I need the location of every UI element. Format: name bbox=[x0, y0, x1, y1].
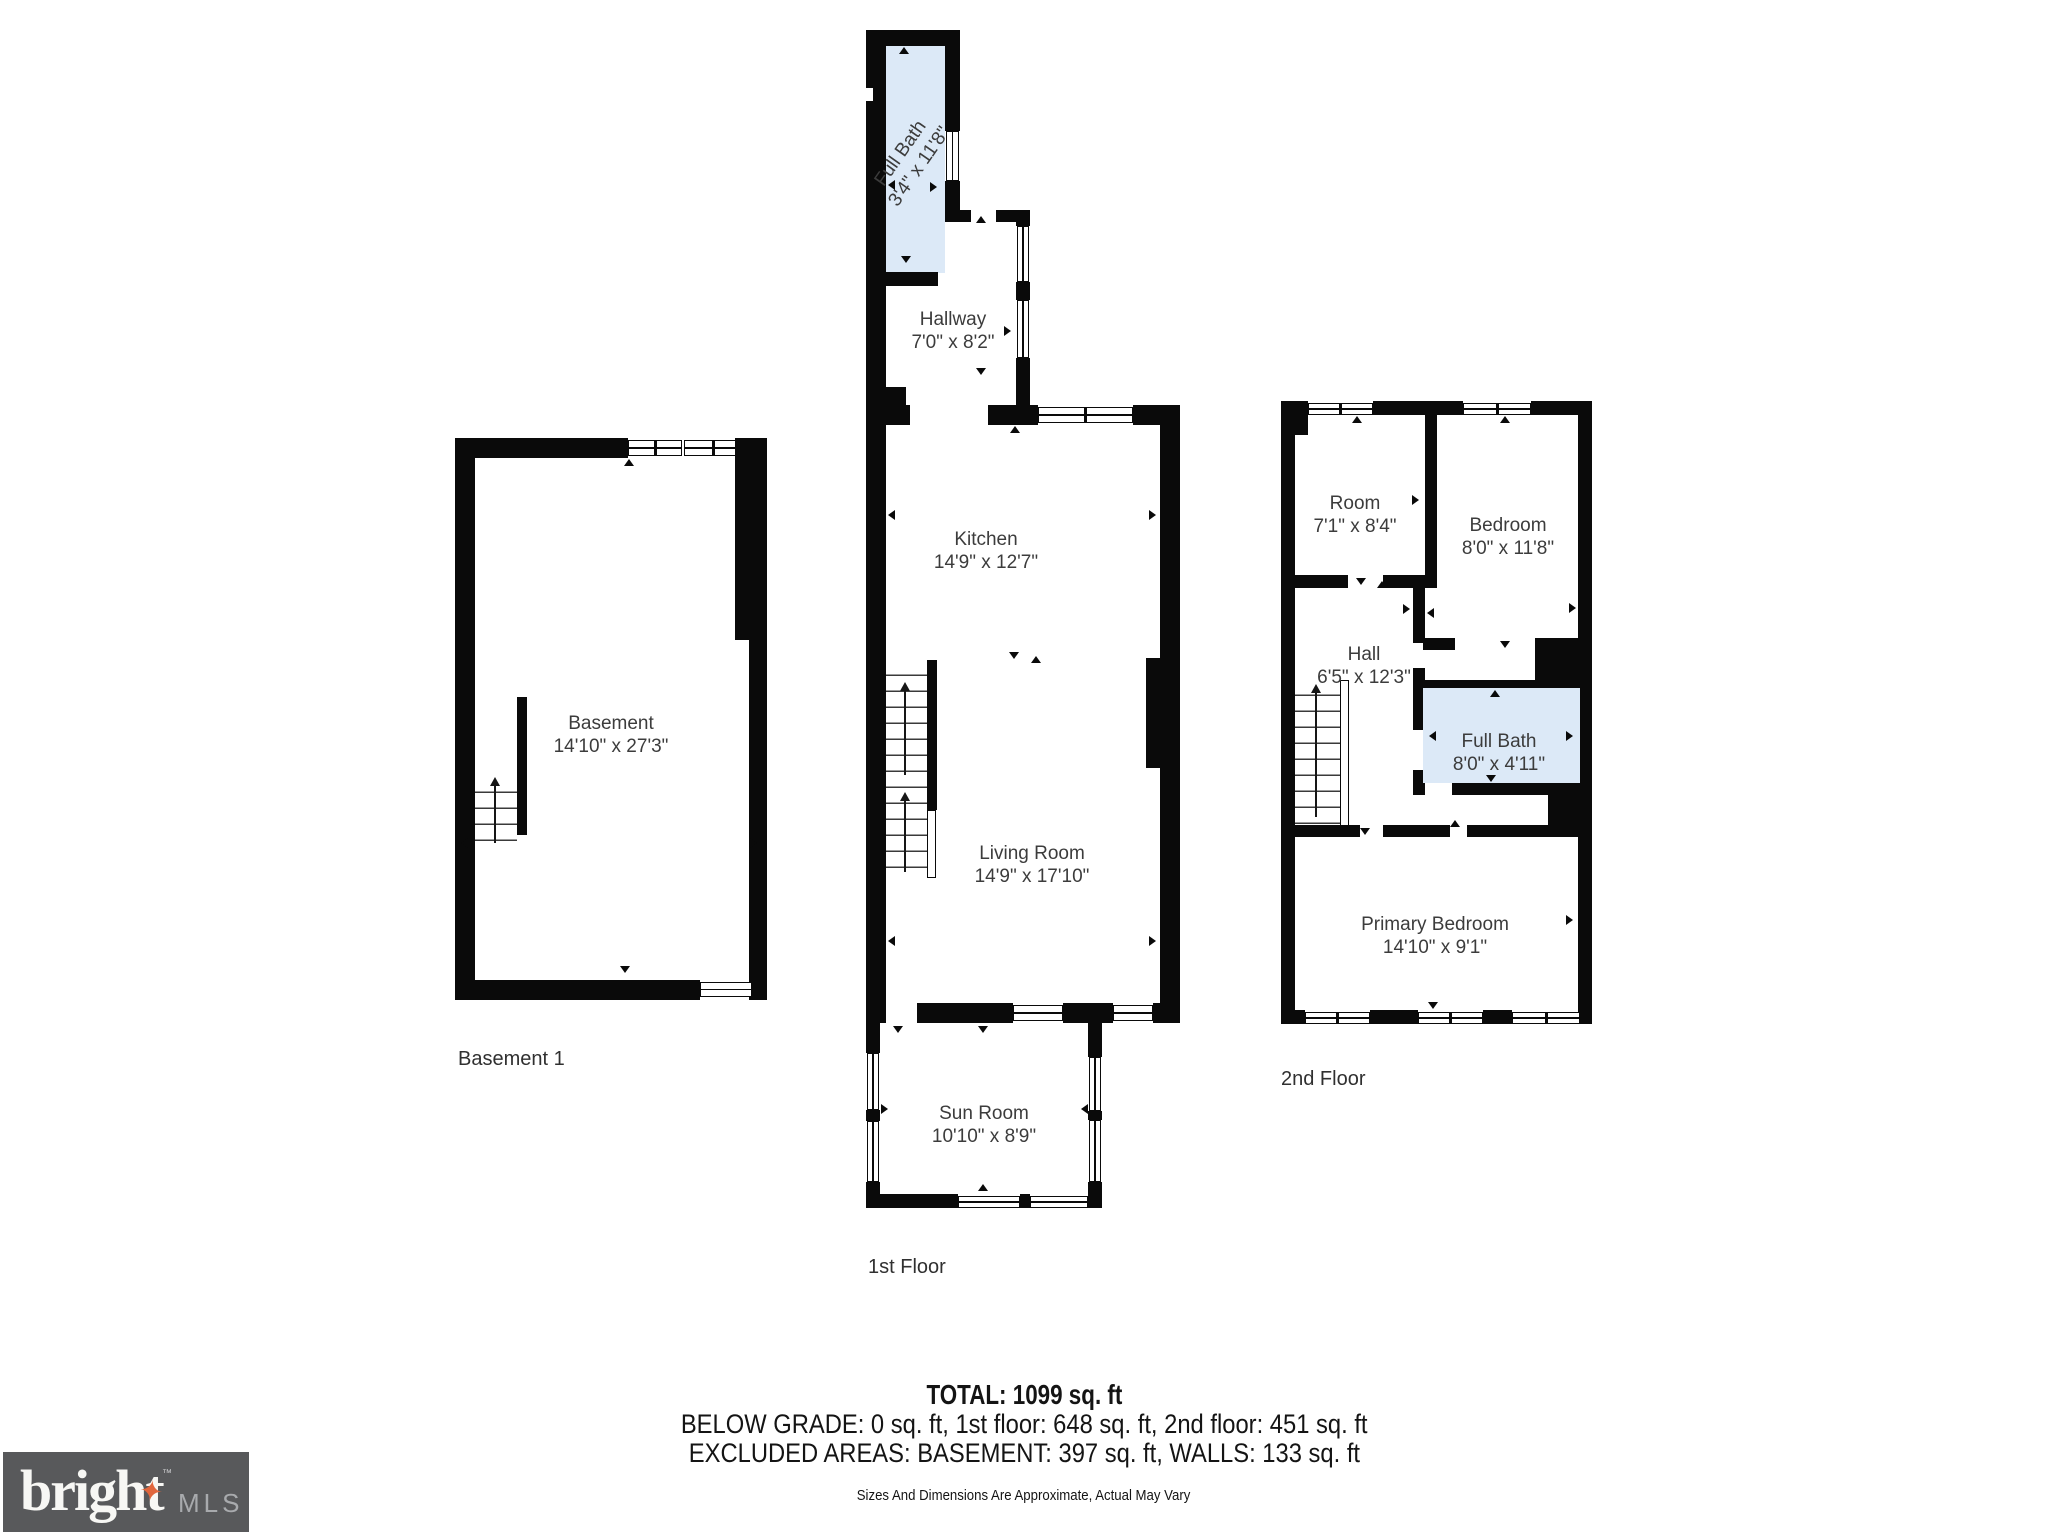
room-name: Primary Bedroom bbox=[1335, 913, 1535, 936]
room-label-kitchen: Kitchen 14'9" x 12'7" bbox=[886, 528, 1086, 574]
wall-segment bbox=[1548, 795, 1592, 825]
window bbox=[1089, 1120, 1101, 1182]
wall-segment bbox=[1295, 575, 1348, 588]
wall-segment bbox=[1088, 1023, 1102, 1057]
window bbox=[867, 1121, 879, 1182]
wall-segment bbox=[1063, 1003, 1113, 1023]
wall-segment bbox=[455, 438, 475, 1000]
wall-segment bbox=[1370, 1010, 1418, 1024]
room-label-bedroom: Bedroom 8'0" x 11'8" bbox=[1408, 514, 1608, 560]
wall-segment bbox=[1578, 401, 1592, 1024]
window bbox=[1089, 1057, 1101, 1111]
room-label-sun-room: Sun Room 10'10" x 8'9" bbox=[884, 1102, 1084, 1148]
dimension-tick bbox=[1377, 581, 1387, 588]
trademark-symbol: ™ bbox=[162, 1468, 172, 1479]
first-floor-stairs bbox=[886, 660, 927, 878]
wall-segment bbox=[1281, 1010, 1305, 1024]
dimension-tick bbox=[930, 182, 937, 192]
room-dims: 14'9" x 12'7" bbox=[886, 551, 1086, 574]
summary-line2-text: BELOW GRADE: 0 sq. ft, 1st floor: 648 sq… bbox=[681, 1409, 1368, 1440]
room-label-living-room: Living Room 14'9" x 17'10" bbox=[932, 842, 1132, 888]
dimension-tick bbox=[1500, 641, 1510, 648]
basement-stairs bbox=[475, 777, 517, 845]
wall-segment bbox=[988, 405, 1038, 425]
dimension-tick bbox=[1429, 731, 1436, 741]
dimension-tick bbox=[1566, 915, 1573, 925]
dimension-tick bbox=[899, 47, 909, 54]
room-dims: 8'0" x 4'11" bbox=[1399, 753, 1599, 776]
wall-segment bbox=[1413, 588, 1425, 643]
floor-label-second: 2nd Floor bbox=[1281, 1068, 1366, 1091]
dimension-tick bbox=[978, 1026, 988, 1033]
dimension-tick bbox=[1500, 416, 1510, 423]
wall-notch bbox=[866, 88, 873, 101]
dimension-tick bbox=[1360, 828, 1370, 835]
room-label-basement: Basement 14'10" x 27'3" bbox=[511, 712, 711, 758]
room-name: Kitchen bbox=[886, 528, 1086, 551]
dimension-tick bbox=[1412, 495, 1419, 505]
floor-label-first: 1st Floor bbox=[868, 1256, 946, 1279]
room-dims: 10'10" x 8'9" bbox=[884, 1125, 1084, 1148]
bright-mls-logo: bright ✦ ™ MLS bbox=[3, 1452, 249, 1532]
stairs-direction-arrow bbox=[904, 800, 906, 872]
window bbox=[684, 440, 742, 456]
room-dims: 14'9" x 17'10" bbox=[932, 865, 1132, 888]
wall-segment bbox=[866, 387, 906, 413]
room-name: Basement bbox=[511, 712, 711, 735]
wall-segment bbox=[1281, 825, 1360, 837]
summary-disclaimer: Sizes And Dimensions Are Approximate, Ac… bbox=[0, 1487, 2048, 1504]
window bbox=[1418, 1012, 1483, 1024]
room-name: Sun Room bbox=[884, 1102, 1084, 1125]
wall-segment bbox=[1281, 401, 1308, 415]
stairs-direction-arrow bbox=[1315, 692, 1317, 817]
wall-segment bbox=[1373, 401, 1463, 415]
dimension-tick bbox=[1428, 1002, 1438, 1009]
logo-mls-text: MLS bbox=[178, 1488, 243, 1519]
stair-rail bbox=[1340, 680, 1349, 827]
room-dims: 14'10" x 27'3" bbox=[511, 735, 711, 758]
summary-line-excluded: EXCLUDED AREAS: BASEMENT: 397 sq. ft, WA… bbox=[0, 1438, 2048, 1469]
wall-segment bbox=[1535, 638, 1583, 680]
window bbox=[700, 982, 752, 997]
wall-segment bbox=[917, 1003, 1013, 1023]
dimension-tick bbox=[1284, 915, 1291, 925]
room-name: Living Room bbox=[932, 842, 1132, 865]
second-floor-stairs bbox=[1295, 680, 1340, 827]
dimension-tick bbox=[1427, 608, 1434, 618]
floorplan-canvas: Basement 14'10" x 27'3" Basement 1 Full … bbox=[0, 0, 2048, 1536]
window bbox=[1305, 1012, 1370, 1024]
window bbox=[1463, 403, 1531, 415]
window bbox=[628, 440, 682, 456]
wall-segment bbox=[1383, 575, 1437, 588]
window bbox=[1030, 1196, 1088, 1208]
floor-label-basement: Basement 1 bbox=[458, 1048, 565, 1071]
summary-total: TOTAL: 1099 sq. ft bbox=[0, 1379, 2048, 1411]
window bbox=[1038, 407, 1133, 423]
window bbox=[867, 1053, 879, 1110]
wall-segment bbox=[455, 438, 628, 458]
dimension-tick bbox=[1569, 603, 1576, 613]
dimension-tick bbox=[1149, 936, 1156, 946]
wall-segment bbox=[1580, 1010, 1592, 1024]
wall-segment bbox=[1483, 1010, 1512, 1024]
dimension-tick bbox=[1450, 820, 1460, 827]
window bbox=[958, 1196, 1020, 1208]
chimney bbox=[1146, 658, 1180, 768]
dimension-tick bbox=[1081, 1104, 1088, 1114]
dimension-tick bbox=[1284, 495, 1291, 505]
wall-segment bbox=[1088, 1111, 1102, 1120]
window bbox=[1013, 1005, 1063, 1021]
summary-line3-text: EXCLUDED AREAS: BASEMENT: 397 sq. ft, WA… bbox=[688, 1438, 1359, 1469]
wall-segment bbox=[1383, 825, 1450, 837]
wall-segment bbox=[1413, 783, 1423, 795]
wall-segment bbox=[945, 210, 971, 222]
dimension-tick bbox=[1403, 604, 1410, 614]
stairs-direction-arrow bbox=[904, 690, 906, 775]
dimension-tick bbox=[461, 838, 468, 848]
stairs-direction-arrow bbox=[494, 785, 496, 843]
wall-segment bbox=[1088, 1194, 1102, 1208]
wall-segment bbox=[752, 980, 767, 1000]
wall-segment bbox=[1413, 680, 1580, 688]
window bbox=[1113, 1005, 1153, 1021]
wall-segment bbox=[866, 1023, 880, 1053]
dimension-tick bbox=[1031, 656, 1041, 663]
dimension-tick bbox=[620, 966, 630, 973]
dimension-tick bbox=[888, 936, 895, 946]
dimension-tick bbox=[1566, 731, 1573, 741]
dimension-tick bbox=[976, 368, 986, 375]
dimension-tick bbox=[1010, 426, 1020, 433]
dimension-tick bbox=[1004, 326, 1011, 336]
dimension-tick bbox=[881, 1104, 888, 1114]
dimension-tick bbox=[1149, 510, 1156, 520]
wall-segment bbox=[996, 210, 1016, 222]
wall-segment bbox=[1016, 358, 1030, 405]
wall-segment bbox=[866, 272, 938, 286]
dimension-tick bbox=[1009, 652, 1019, 659]
wall-segment bbox=[945, 181, 960, 213]
wall-segment bbox=[1452, 783, 1580, 795]
dimension-tick bbox=[1490, 690, 1500, 697]
dimension-tick bbox=[976, 216, 986, 223]
wall-segment bbox=[866, 1110, 880, 1121]
dimension-tick bbox=[750, 838, 757, 848]
dimension-tick bbox=[624, 459, 634, 466]
room-label-primary-bedroom: Primary Bedroom 14'10" x 9'1" bbox=[1335, 913, 1535, 959]
dimension-tick bbox=[1486, 775, 1496, 782]
dimension-tick bbox=[978, 1184, 988, 1191]
wall-segment bbox=[1016, 282, 1030, 300]
room-name: Room bbox=[1275, 492, 1435, 515]
window bbox=[1512, 1012, 1580, 1024]
dimension-tick bbox=[901, 256, 911, 263]
room-dims: 6'5" x 12'3" bbox=[1294, 666, 1434, 689]
wall-segment bbox=[735, 438, 749, 640]
room-label-hall: Hall 6'5" x 12'3" bbox=[1294, 643, 1434, 689]
wall-segment bbox=[1153, 1003, 1180, 1023]
room-dims: 14'10" x 9'1" bbox=[1335, 936, 1535, 959]
room-name: Hall bbox=[1294, 643, 1434, 666]
window bbox=[1308, 403, 1373, 415]
dimension-tick bbox=[888, 510, 895, 520]
wall-segment bbox=[455, 980, 700, 1000]
wall-segment bbox=[927, 660, 937, 810]
summary-disclaimer-text: Sizes And Dimensions Are Approximate, Ac… bbox=[857, 1487, 1191, 1504]
room-name: Bedroom bbox=[1408, 514, 1608, 537]
dimension-tick bbox=[893, 1026, 903, 1033]
summary-total-text: TOTAL: 1099 sq. ft bbox=[926, 1379, 1122, 1411]
wall-segment bbox=[1016, 210, 1030, 226]
wall-segment bbox=[866, 1194, 958, 1208]
dimension-tick bbox=[1352, 416, 1362, 423]
summary-line-below-grade: BELOW GRADE: 0 sq. ft, 1st floor: 648 sq… bbox=[0, 1409, 2048, 1440]
wall-segment bbox=[749, 438, 767, 1000]
wall-segment bbox=[1020, 1194, 1030, 1208]
wall-segment bbox=[1467, 825, 1592, 837]
dimension-tick bbox=[1356, 578, 1366, 585]
window bbox=[1017, 226, 1029, 282]
dimension-tick bbox=[888, 180, 895, 190]
room-dims: 8'0" x 11'8" bbox=[1408, 537, 1608, 560]
